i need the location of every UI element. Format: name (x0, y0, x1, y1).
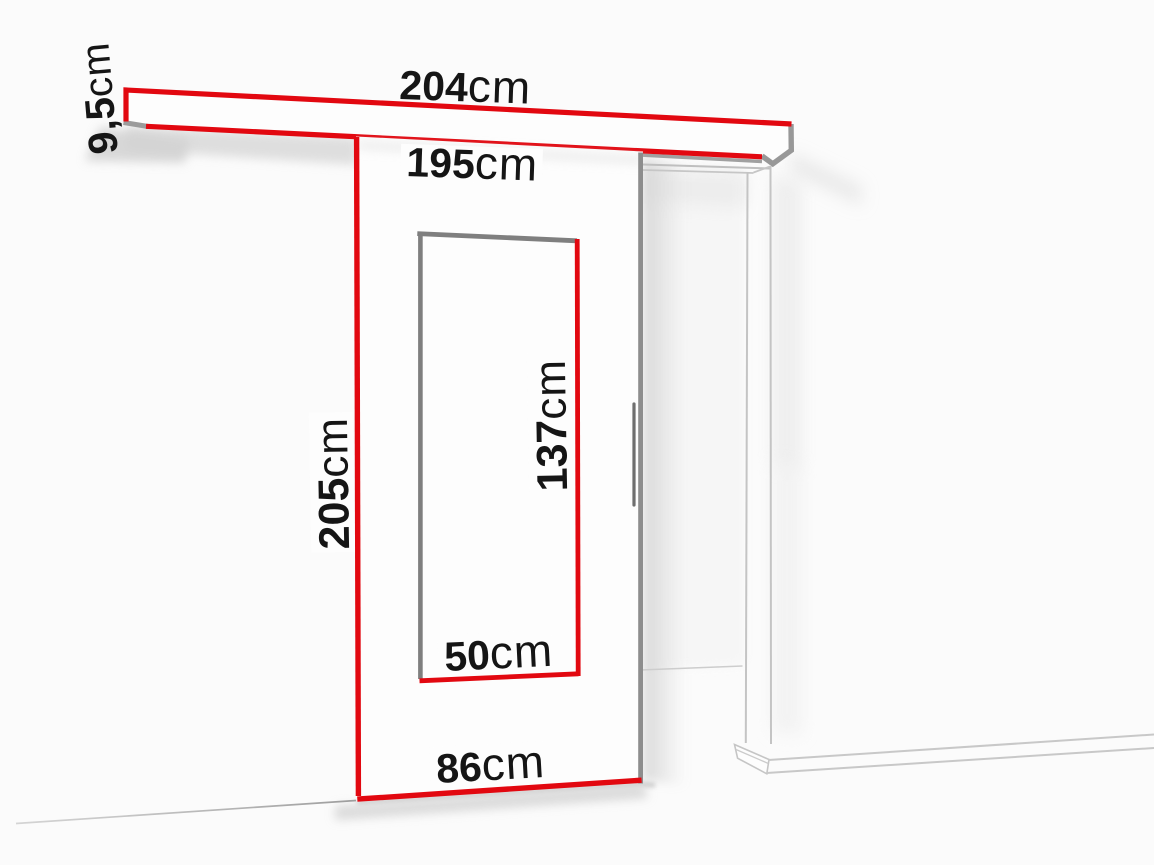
svg-text:9,5cm: 9,5cm (71, 40, 127, 156)
svg-text:50cm: 50cm (443, 624, 554, 681)
svg-text:195cm: 195cm (406, 134, 539, 191)
svg-text:137cm: 137cm (526, 359, 577, 492)
svg-text:204cm: 204cm (399, 57, 532, 114)
svg-text:205cm: 205cm (308, 417, 359, 550)
